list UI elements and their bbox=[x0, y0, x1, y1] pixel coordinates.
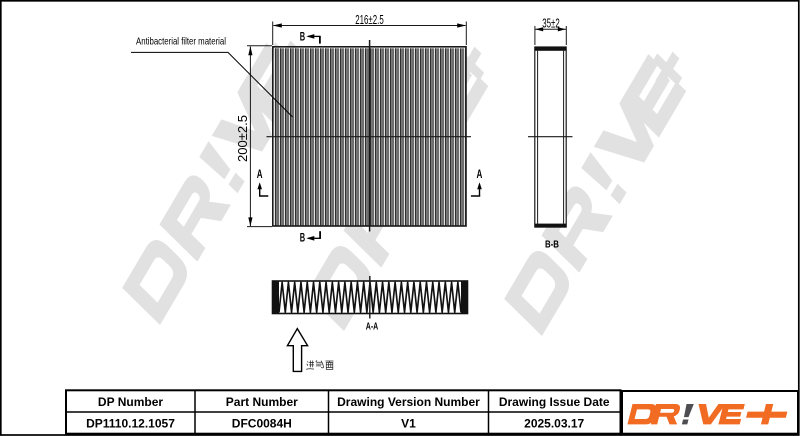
svg-text:Drawing Issue Date: Drawing Issue Date bbox=[499, 395, 610, 409]
svg-text:V1: V1 bbox=[401, 416, 416, 430]
svg-text:DP Number: DP Number bbox=[98, 395, 163, 409]
svg-text:DFC0084H: DFC0084H bbox=[232, 416, 292, 430]
svg-text:216±2.5: 216±2.5 bbox=[355, 12, 384, 27]
svg-text:200±2.5: 200±2.5 bbox=[235, 115, 250, 162]
svg-text:A: A bbox=[257, 169, 263, 181]
svg-text:Part Number: Part Number bbox=[226, 395, 298, 409]
svg-text:B-B: B-B bbox=[545, 238, 559, 250]
svg-text:A-A: A-A bbox=[366, 320, 379, 332]
svg-text:2025.03.17: 2025.03.17 bbox=[524, 416, 584, 430]
svg-text:35±2: 35±2 bbox=[542, 16, 560, 31]
svg-text:A: A bbox=[477, 169, 483, 181]
svg-text:DP1110.12.1057: DP1110.12.1057 bbox=[86, 416, 175, 430]
svg-text:B: B bbox=[300, 233, 305, 245]
svg-text:Antibacterial filter material: Antibacterial filter material bbox=[136, 36, 226, 48]
svg-text:Drawing Version Number: Drawing Version Number bbox=[337, 395, 480, 409]
svg-text:B: B bbox=[300, 31, 305, 43]
